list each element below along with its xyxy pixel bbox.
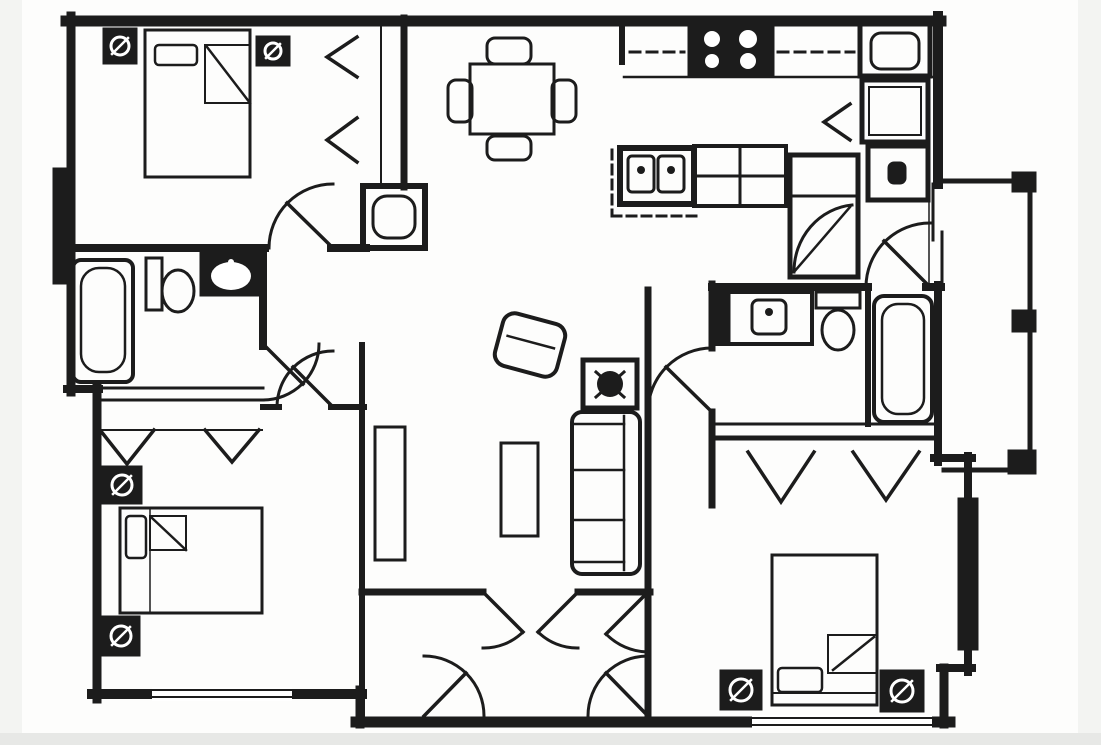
door-leaf-front-right [606, 673, 648, 716]
vanity2-faucet [765, 308, 773, 316]
kitchen-appliance-dot [888, 162, 906, 184]
window-bedroom3-gap [752, 715, 932, 728]
window-right-bar [958, 498, 978, 650]
bed2-outline [120, 508, 262, 613]
media-console [375, 427, 405, 560]
door-leaf-front-left [424, 673, 466, 716]
dining-chair-left [448, 80, 472, 122]
toilet1-bowl [162, 270, 194, 312]
dining-chair-right [552, 80, 576, 122]
burner-1 [704, 31, 720, 47]
refrigerator [862, 80, 928, 142]
entry-double-leaf-right [538, 592, 578, 632]
dining-chair-top [487, 38, 531, 64]
floorplan-svg [0, 0, 1101, 745]
dining-table [470, 64, 554, 134]
bathtub2-inner [882, 304, 924, 414]
washer-drum [373, 196, 415, 238]
coffee-table [501, 443, 538, 536]
vanity1-faucet [228, 259, 234, 265]
bed1-pillow [155, 45, 197, 65]
door-leaf-bath2 [666, 367, 712, 412]
refrigerator-inner [869, 87, 921, 135]
bed3-outline [772, 555, 877, 705]
entry-side-arc-right [606, 634, 648, 652]
window-left-bar [53, 168, 67, 284]
sofa-outline [572, 412, 640, 574]
entry-double-arc-left [483, 632, 523, 648]
entry-side-leaf-right [606, 592, 648, 634]
balcony-post-bottom [1008, 450, 1036, 474]
bed1-fold-diagonal [207, 47, 250, 103]
island-faucet-b [667, 166, 675, 174]
bed2-closet-bifold-2 [205, 430, 259, 462]
balcony-post-mid [1012, 310, 1036, 332]
bed1-closet-bifold-1 [327, 37, 357, 77]
toilet2-bowl [822, 310, 854, 350]
cooktop [688, 24, 774, 76]
kitchen-sink-basin [871, 33, 919, 69]
toilet1-tank [146, 258, 162, 310]
bed2-closet-bifold-1 [100, 430, 154, 464]
balcony-post-top [1012, 172, 1036, 192]
floorplan-shapes [53, 16, 1036, 728]
armchair-body [492, 311, 568, 380]
burner-4 [740, 53, 756, 69]
door-leaf-kitchen-hall [884, 241, 930, 287]
toilet2-tank [816, 292, 860, 308]
floorplan-page [0, 0, 1101, 745]
vanity2-basin [752, 300, 786, 334]
burner-3 [705, 54, 719, 68]
entry-double-leaf-left [483, 592, 523, 632]
bed2-pillow [126, 516, 146, 558]
pantry-bifold-chevron [824, 104, 850, 140]
bath2-closet-bifold-2 [853, 452, 919, 500]
vanity1-basin [211, 262, 251, 290]
bathtub1-inner [81, 268, 125, 372]
burner-2 [739, 30, 757, 48]
vanity2-dark-band [714, 292, 730, 344]
armchair-seat-line [508, 336, 554, 348]
entry-double-arc-right [538, 632, 578, 648]
door-leaf-bedroom1 [287, 203, 333, 248]
island-faucet-a [637, 166, 645, 174]
bed3-pillow [778, 668, 822, 692]
bed3-fold-diagonal [833, 637, 874, 670]
dining-chair-bottom [487, 136, 531, 160]
bed2-fold-diagonal [152, 518, 186, 550]
bath2-closet-bifold-1 [748, 452, 814, 502]
bed1-closet-bifold-2 [327, 118, 357, 162]
